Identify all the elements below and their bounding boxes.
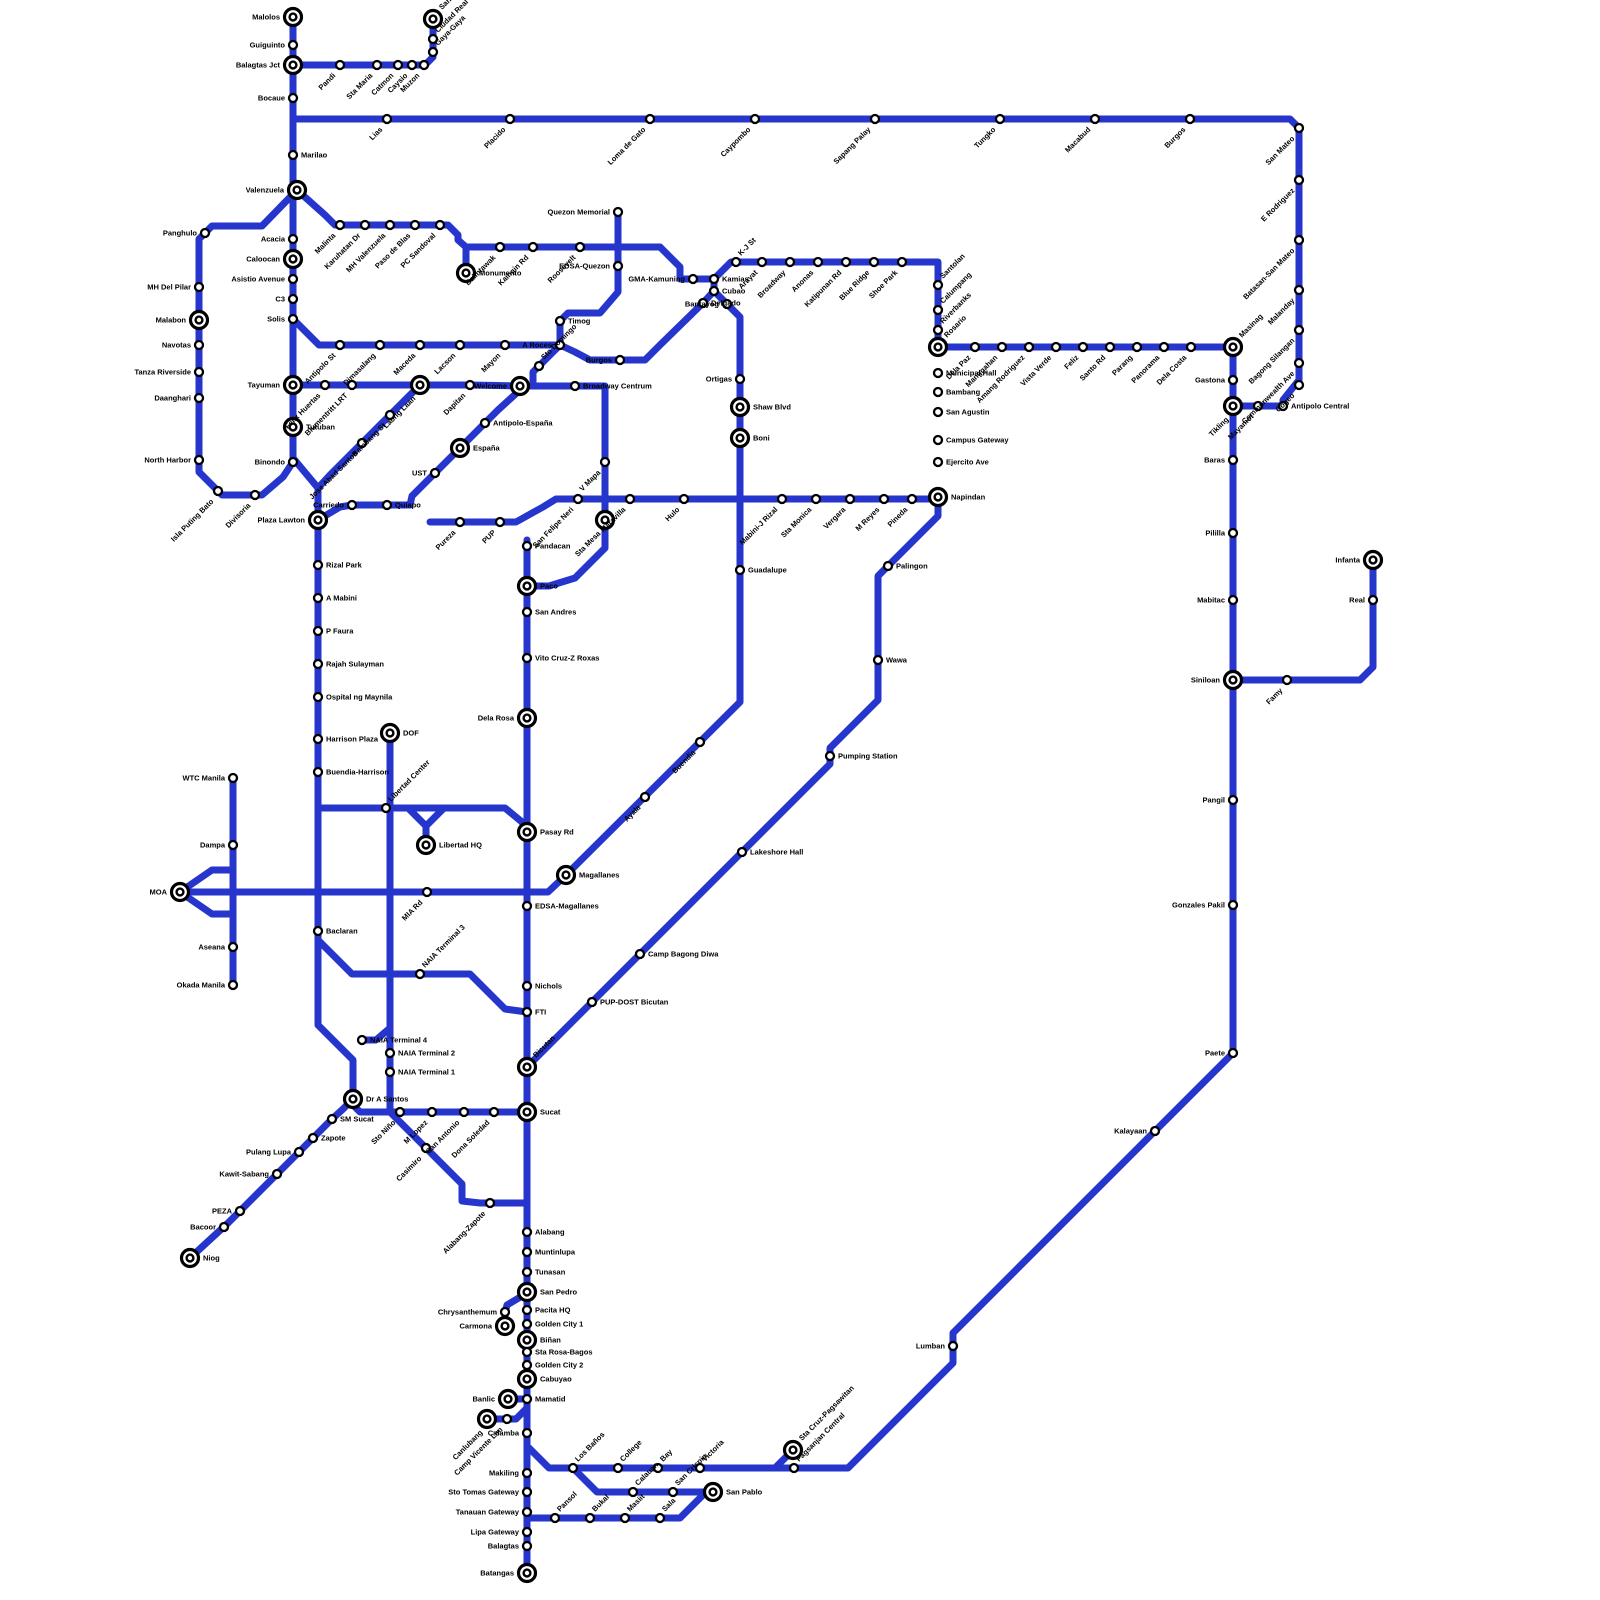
- station-pandi[interactable]: [336, 61, 344, 69]
- station-binondo[interactable]: [289, 458, 297, 466]
- station-dot: [321, 381, 329, 389]
- station-cubao[interactable]: [710, 287, 718, 295]
- station-burgos[interactable]: [1186, 115, 1194, 123]
- interchange-station-bicutan[interactable]: [519, 1059, 536, 1076]
- station-municipal-hall[interactable]: [934, 369, 942, 377]
- station-dot: [523, 1348, 531, 1356]
- station-libertad-center[interactable]: [382, 804, 390, 812]
- station-calauan[interactable]: [629, 1488, 637, 1496]
- station-hulo[interactable]: [680, 495, 688, 503]
- interchange-station-malabon[interactable]: [191, 312, 208, 329]
- station-asistio-avenue[interactable]: [289, 275, 297, 283]
- station-los-ba-os[interactable]: [569, 1464, 577, 1472]
- station-wtc-manila[interactable]: [229, 774, 237, 782]
- station-pacita-hq[interactable]: [523, 1306, 531, 1314]
- station-mabini-j-rizal[interactable]: [778, 495, 786, 503]
- station-pulang-lupa[interactable]: [295, 1148, 303, 1156]
- station-dot: [408, 61, 416, 69]
- station-san-crispin[interactable]: [669, 1488, 677, 1496]
- station-broadway[interactable]: [786, 258, 794, 266]
- station-dampa[interactable]: [229, 841, 237, 849]
- station-pagsanjan-central[interactable]: [790, 1464, 798, 1472]
- interchange-station-sucat[interactable]: [519, 1104, 536, 1121]
- station-dot: [646, 115, 654, 123]
- station-camp-vicente-lim[interactable]: [503, 1415, 511, 1423]
- interchange-station-tayuman[interactable]: [285, 377, 302, 394]
- station-label: NAIA Terminal 4: [370, 1036, 428, 1045]
- station-placido[interactable]: [506, 115, 514, 123]
- station-sto-domingo[interactable]: [535, 362, 543, 370]
- station-malinta[interactable]: [336, 221, 344, 229]
- station-label: MOA: [150, 888, 168, 897]
- station-label: Cabuyao: [540, 1375, 572, 1384]
- station-dot: [874, 656, 882, 664]
- station-san-agustin[interactable]: [934, 408, 942, 416]
- interchange-station-carmona[interactable]: [497, 1318, 514, 1335]
- station-label: Golden City 2: [535, 1361, 583, 1370]
- station-kamias[interactable]: [710, 275, 718, 283]
- station-manggahan[interactable]: [998, 343, 1006, 351]
- interchange-station-napindan[interactable]: [930, 489, 947, 506]
- interchange-station-shaw-blvd[interactable]: [732, 399, 749, 416]
- station-maceda[interactable]: [416, 341, 424, 349]
- station-antipolo-espa-a[interactable]: [481, 419, 489, 427]
- station-santolan[interactable]: [934, 281, 942, 289]
- station-pangil[interactable]: [1229, 796, 1237, 804]
- station-dot: [466, 381, 474, 389]
- station-loma-de-gato[interactable]: [646, 115, 654, 123]
- station-chrysanthemum[interactable]: [501, 1308, 509, 1316]
- interchange-station-moa[interactable]: [172, 884, 189, 901]
- station-dot: [376, 341, 384, 349]
- station-batasan-san-mateo[interactable]: [1295, 236, 1303, 244]
- station-label: Ospital ng Maynila: [326, 693, 393, 702]
- station-kawit-sabang[interactable]: [273, 1170, 281, 1178]
- station-buendia-harrison[interactable]: [314, 768, 322, 776]
- station-quezon-memorial[interactable]: [614, 208, 622, 216]
- station-navotas[interactable]: [195, 341, 203, 349]
- interchange-station-dof[interactable]: [382, 725, 399, 742]
- station-baclaran[interactable]: [314, 927, 322, 935]
- station-lumban[interactable]: [949, 1342, 957, 1350]
- station-golden-city-1[interactable]: [523, 1320, 531, 1328]
- station-dot: [428, 1108, 436, 1116]
- station-macabud[interactable]: [1091, 115, 1099, 123]
- station-acacia[interactable]: [289, 235, 297, 243]
- station-dot: [481, 419, 489, 427]
- station-peza[interactable]: [236, 1207, 244, 1215]
- station-label: Valenzuela: [246, 186, 285, 195]
- station-alabang-zapote[interactable]: [486, 1199, 494, 1207]
- station-label: Boni: [753, 434, 770, 443]
- station-dot: [1295, 176, 1303, 184]
- station-dot: [1229, 1049, 1237, 1057]
- station-label: Muntinlupa: [535, 1248, 576, 1257]
- station-katipunan-rd[interactable]: [842, 258, 850, 266]
- station-label: WTC Manila: [183, 774, 226, 783]
- station-carriedo[interactable]: [348, 501, 356, 509]
- station-kaingin-rd[interactable]: [529, 243, 537, 251]
- station-label: San Pablo: [726, 1488, 763, 1497]
- interchange-station-magallanes[interactable]: [558, 867, 575, 884]
- station-dot: [229, 943, 237, 951]
- station-dot: [386, 221, 394, 229]
- station-rajah-sulayman[interactable]: [314, 660, 322, 668]
- station-pililla[interactable]: [1229, 529, 1237, 537]
- interchange-inner-ring: [457, 445, 464, 452]
- station-pup[interactable]: [496, 518, 504, 526]
- station-felix-huertas[interactable]: [321, 381, 329, 389]
- station-vergara[interactable]: [846, 495, 854, 503]
- interchange-station-dela-rosa[interactable]: [519, 710, 536, 727]
- interchange-inner-ring: [1230, 344, 1237, 351]
- station-marilao[interactable]: [289, 151, 297, 159]
- station-dot: [289, 315, 297, 323]
- station-college[interactable]: [614, 1464, 622, 1472]
- station-lias[interactable]: [383, 115, 391, 123]
- station-sm-sucat[interactable]: [328, 1115, 336, 1123]
- station-balagtas[interactable]: [523, 1542, 531, 1550]
- interchange-station-rosario[interactable]: [930, 339, 947, 356]
- station-dapitan[interactable]: [466, 381, 474, 389]
- station-dot: [460, 1108, 468, 1116]
- station-dimasalang[interactable]: [376, 341, 384, 349]
- station-dot: [236, 1207, 244, 1215]
- station-santo-rd[interactable]: [1106, 343, 1114, 351]
- station-panghulo[interactable]: [201, 229, 209, 237]
- station-gma-kamuning[interactable]: [689, 275, 697, 283]
- station-roosevelt[interactable]: [576, 243, 584, 251]
- station-vista-verde[interactable]: [1052, 343, 1060, 351]
- interchange-station-banlic[interactable]: [500, 1391, 517, 1408]
- station-mh-del-pilar[interactable]: [195, 283, 203, 291]
- station-tanza-riverside[interactable]: [195, 368, 203, 376]
- interchange-station-siniloan[interactable]: [1225, 672, 1242, 689]
- station-zapote[interactable]: [309, 1134, 317, 1142]
- interchange-inner-ring: [187, 1255, 194, 1262]
- station-amang-rodriguez[interactable]: [1025, 343, 1033, 351]
- station-m-reyes[interactable]: [880, 495, 888, 503]
- station-p-faura[interactable]: [314, 627, 322, 635]
- station-naia-terminal-3[interactable]: [416, 970, 424, 978]
- station-arayat[interactable]: [758, 258, 766, 266]
- station-san-felipe-neri[interactable]: [574, 495, 582, 503]
- station-dot: [736, 566, 744, 574]
- station-dot: [383, 501, 391, 509]
- station-maravilla[interactable]: [626, 495, 634, 503]
- station-label: Malabon: [156, 316, 187, 325]
- station-dot: [336, 221, 344, 229]
- station-blue-ridge[interactable]: [870, 258, 878, 266]
- station-timog[interactable]: [556, 317, 564, 325]
- station-label: Paete: [1205, 1049, 1225, 1058]
- station-nichols[interactable]: [523, 982, 531, 990]
- station-dot: [871, 115, 879, 123]
- station-catmon[interactable]: [394, 61, 402, 69]
- station-dot: [229, 981, 237, 989]
- station-bacoor[interactable]: [220, 1223, 228, 1231]
- station-lakeshore-hall[interactable]: [738, 848, 746, 856]
- station-caysio[interactable]: [408, 61, 416, 69]
- station-dot: [758, 258, 766, 266]
- station-harrison-plaza[interactable]: [314, 735, 322, 743]
- station-quiapo[interactable]: [383, 501, 391, 509]
- interchange-station-plaza-lawton[interactable]: [310, 512, 327, 529]
- interchange-station-cabuyao[interactable]: [519, 1371, 536, 1388]
- station-campus-gateway[interactable]: [934, 436, 942, 444]
- station-pineda[interactable]: [908, 495, 916, 503]
- interchange-station-laong-laan[interactable]: [412, 377, 429, 394]
- station-muntinlupa[interactable]: [523, 1248, 531, 1256]
- station-real[interactable]: [1369, 596, 1377, 604]
- station-dot: [523, 1008, 531, 1016]
- station-pumping-station[interactable]: [826, 752, 834, 760]
- station-kalayaan[interactable]: [1151, 1127, 1159, 1135]
- interchange-station-san-pablo[interactable]: [705, 1484, 722, 1501]
- station-lipa-gateway[interactable]: [523, 1528, 531, 1536]
- station-sta-rosa-bagos[interactable]: [523, 1348, 531, 1356]
- station-mabitac[interactable]: [1229, 596, 1237, 604]
- station-naia-terminal-2[interactable]: [386, 1049, 394, 1057]
- station-dot: [195, 368, 203, 376]
- station-sala[interactable]: [656, 1514, 664, 1522]
- interchange-station-san-pedro[interactable]: [519, 1284, 536, 1301]
- station-gastona[interactable]: [1229, 376, 1237, 384]
- transit-map: MalolosGuiguintoBalagtas JctBocaueMarila…: [0, 0, 1600, 1600]
- interchange-inner-ring: [196, 317, 203, 324]
- station-dot: [1079, 343, 1087, 351]
- station-sta-maria[interactable]: [373, 61, 381, 69]
- station-balintawak[interactable]: [496, 243, 504, 251]
- station-parang[interactable]: [1133, 343, 1141, 351]
- interchange-station-libertad-hq[interactable]: [418, 837, 435, 854]
- station-dela-costa[interactable]: [1187, 343, 1195, 351]
- station-dot: [436, 221, 444, 229]
- station-pup-dost-bicutan[interactable]: [588, 998, 596, 1006]
- interchange-inner-ring: [1230, 677, 1237, 684]
- station-dot: [629, 1488, 637, 1496]
- interchange-station-pasay-rd[interactable]: [519, 824, 536, 841]
- station-malanday[interactable]: [1295, 286, 1303, 294]
- station-dot: [373, 61, 381, 69]
- station-dot: [1229, 376, 1237, 384]
- station-c3[interactable]: [289, 295, 297, 303]
- station-calamba[interactable]: [523, 1429, 531, 1437]
- interchange-station-paco[interactable]: [519, 578, 536, 595]
- station-dot: [416, 970, 424, 978]
- interchange-station-espa-a[interactable]: [452, 440, 469, 457]
- station-riverbanks[interactable]: [934, 326, 942, 334]
- station-dot: [1295, 124, 1303, 132]
- station-sta-monica[interactable]: [812, 495, 820, 503]
- interchange-station-welcome[interactable]: [512, 378, 529, 395]
- station-dela-paz[interactable]: [971, 343, 979, 351]
- station-sto-tomas-gateway[interactable]: [523, 1488, 531, 1496]
- station-rizal-park[interactable]: [314, 561, 322, 569]
- station-gonzales-pakil[interactable]: [1229, 901, 1237, 909]
- station-k-j-st[interactable]: [732, 258, 740, 266]
- station-pc-sandoval[interactable]: [436, 221, 444, 229]
- station-dot: [751, 115, 759, 123]
- station-label: Okada Manila: [177, 981, 226, 990]
- station-dona-soledad[interactable]: [490, 1108, 498, 1116]
- station-label: Aseana: [198, 943, 226, 952]
- station-daanghari[interactable]: [195, 394, 203, 402]
- interchange-station-bi-an[interactable]: [519, 1332, 536, 1349]
- station-shoe-park[interactable]: [898, 258, 906, 266]
- station-m-lopez[interactable]: [428, 1108, 436, 1116]
- interchange-station-batangas[interactable]: [519, 1565, 536, 1582]
- station-guiguinto[interactable]: [289, 41, 297, 49]
- station-tunasan[interactable]: [523, 1268, 531, 1276]
- station-edsa-quezon[interactable]: [614, 262, 622, 270]
- station-dot: [501, 341, 509, 349]
- station-dot: [314, 735, 322, 743]
- station-dot: [1295, 286, 1303, 294]
- interchange-station-valenzuela[interactable]: [289, 182, 306, 199]
- station-karuhatan-dr[interactable]: [361, 221, 369, 229]
- station-ayala[interactable]: [641, 793, 649, 801]
- station-divisoria[interactable]: [251, 491, 259, 499]
- station-ortigas[interactable]: [736, 375, 744, 383]
- station-mia-rd[interactable]: [423, 888, 431, 896]
- station-a-mabini[interactable]: [314, 594, 322, 602]
- station-aseana[interactable]: [229, 943, 237, 951]
- station-label: Siniloan: [1191, 676, 1221, 685]
- station-anonas[interactable]: [814, 258, 822, 266]
- station-label: Chrysanthemum: [438, 1308, 498, 1317]
- station-label: Mamatid: [535, 1395, 566, 1404]
- station-label: North Harbor: [144, 456, 191, 465]
- station-solis[interactable]: [289, 315, 297, 323]
- interchange-station-infanta[interactable]: [1365, 552, 1382, 569]
- interchange-station-niog[interactable]: [182, 1250, 199, 1267]
- station-masiit[interactable]: [621, 1514, 629, 1522]
- station-broadway-centrum[interactable]: [571, 382, 579, 390]
- station-gaya-gaya[interactable]: [429, 48, 437, 56]
- station-famy[interactable]: [1283, 676, 1291, 684]
- station-tungko[interactable]: [996, 115, 1004, 123]
- station-ust[interactable]: [431, 469, 439, 477]
- interchange-station-masinag[interactable]: [1225, 339, 1242, 356]
- interchange-station-malolos[interactable]: [285, 9, 302, 26]
- interchange-inner-ring: [790, 1447, 797, 1454]
- station-ejercito-ave[interactable]: [934, 458, 942, 466]
- station-fti[interactable]: [523, 1008, 531, 1016]
- interchange-station-caloocan[interactable]: [285, 251, 302, 268]
- station-sapang-palay[interactable]: [871, 115, 879, 123]
- station-caypombo[interactable]: [751, 115, 759, 123]
- interchange-station-dr-a-santos[interactable]: [345, 1091, 362, 1108]
- station-edsa-magallanes[interactable]: [523, 902, 531, 910]
- station-dot: [336, 61, 344, 69]
- station-dot: [669, 1488, 677, 1496]
- station-dot: [535, 362, 543, 370]
- station-dot: [842, 258, 850, 266]
- station-paete[interactable]: [1229, 1049, 1237, 1057]
- station-dot: [569, 1464, 577, 1472]
- station-cogeo[interactable]: [1295, 381, 1303, 389]
- station-camp-bagong-diwa[interactable]: [636, 950, 644, 958]
- interchange-station-canlubang[interactable]: [479, 1411, 496, 1428]
- station-bagong-silangan[interactable]: [1295, 326, 1303, 334]
- station-label: Quezon Memorial: [547, 208, 610, 217]
- station-naia-terminal-4[interactable]: [358, 1036, 366, 1044]
- station-dot: [576, 243, 584, 251]
- station-sto-ni-o[interactable]: [396, 1108, 404, 1116]
- station-label: EDSA-Magallanes: [535, 902, 599, 911]
- station-dot: [506, 115, 514, 123]
- interchange-station-tikling[interactable]: [1225, 398, 1242, 415]
- interchange-station-balagtas-jct[interactable]: [285, 57, 302, 74]
- interchange-inner-ring: [290, 382, 297, 389]
- station-muzon[interactable]: [420, 61, 428, 69]
- station-lacson[interactable]: [456, 341, 464, 349]
- station-antipolo-st[interactable]: [336, 341, 344, 349]
- station-vito-cruz-z-roxas[interactable]: [523, 654, 531, 662]
- station-v-mapa[interactable]: [601, 458, 609, 466]
- station-dot: [195, 341, 203, 349]
- station-paso-de-blas[interactable]: [411, 221, 419, 229]
- station-mh-valenzuela[interactable]: [386, 221, 394, 229]
- station-ospital-ng-maynila[interactable]: [314, 693, 322, 701]
- station-dot: [934, 388, 942, 396]
- station-calumpang[interactable]: [934, 306, 942, 314]
- station-label: Napindan: [951, 493, 986, 502]
- station-dot: [309, 1134, 317, 1142]
- station-dot: [496, 518, 504, 526]
- station-e-rodriguez[interactable]: [1295, 176, 1303, 184]
- station-guadalupe[interactable]: [736, 566, 744, 574]
- station-alabang[interactable]: [523, 1228, 531, 1236]
- station-dot: [289, 94, 297, 102]
- station-san-antonio[interactable]: [460, 1108, 468, 1116]
- station-wawa[interactable]: [874, 656, 882, 664]
- interchange-station-boni[interactable]: [732, 430, 749, 447]
- station-commonwealth-ave[interactable]: [1295, 359, 1303, 367]
- station-mayon[interactable]: [501, 341, 509, 349]
- station-tanauan-gateway[interactable]: [523, 1508, 531, 1516]
- station-buendia[interactable]: [696, 738, 704, 746]
- station-san-andres[interactable]: [523, 608, 531, 616]
- station-bukal[interactable]: [586, 1514, 594, 1522]
- station-mamatid[interactable]: [523, 1395, 531, 1403]
- station-dot: [523, 1429, 531, 1437]
- station-feliz[interactable]: [1079, 343, 1087, 351]
- station-isla-puting-bato[interactable]: [214, 487, 222, 495]
- station-burgos[interactable]: [616, 356, 624, 364]
- interchange-inner-ring: [1230, 403, 1237, 410]
- station-label: Buendia-Harrison: [326, 768, 389, 777]
- interchange-inner-ring: [935, 494, 942, 501]
- station-pansol[interactable]: [551, 1514, 559, 1522]
- station-dot: [1025, 343, 1033, 351]
- station-golden-city-2[interactable]: [523, 1361, 531, 1369]
- station-pureza[interactable]: [456, 518, 464, 526]
- station-panorama[interactable]: [1160, 343, 1168, 351]
- station-bocaue[interactable]: [289, 94, 297, 102]
- station-okada-manila[interactable]: [229, 981, 237, 989]
- station-makiling[interactable]: [523, 1469, 531, 1477]
- station-san-mateo[interactable]: [1295, 124, 1303, 132]
- station-palingon[interactable]: [884, 562, 892, 570]
- station-bambang[interactable]: [934, 388, 942, 396]
- station-dot: [790, 1464, 798, 1472]
- station-naia-terminal-1[interactable]: [386, 1068, 394, 1076]
- station-baras[interactable]: [1229, 456, 1237, 464]
- station-north-harbor[interactable]: [195, 456, 203, 464]
- transit-map-canvas: MalolosGuiguintoBalagtas JctBocaueMarila…: [0, 0, 1600, 1600]
